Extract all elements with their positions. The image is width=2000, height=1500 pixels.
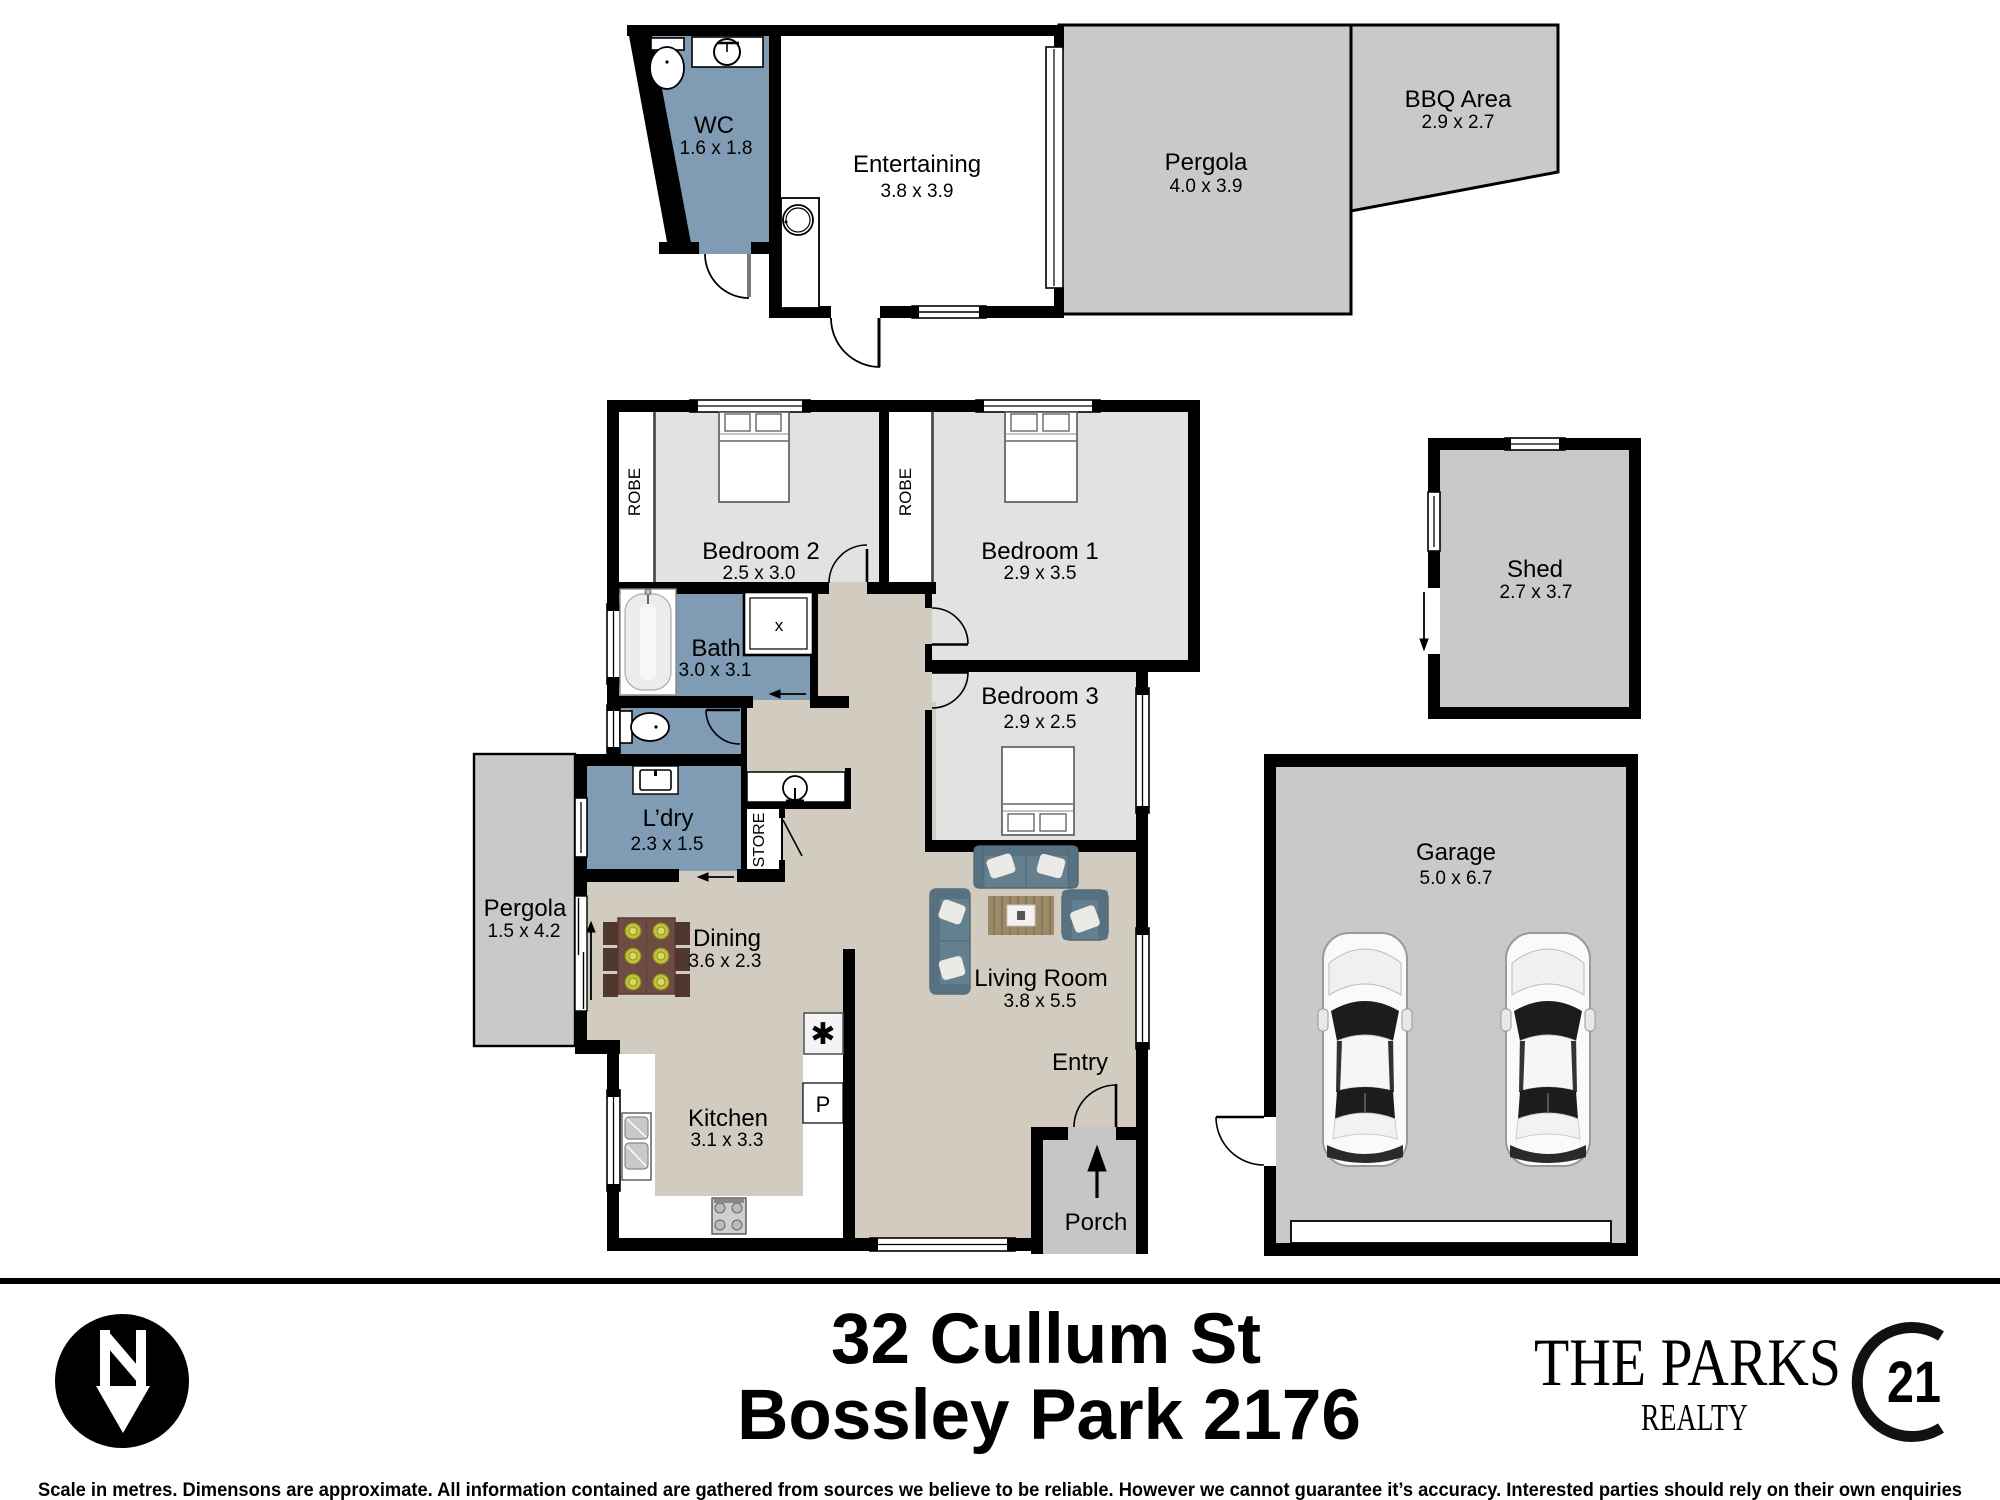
svg-text:Garage: Garage	[1416, 839, 1496, 866]
svg-text:32 Cullum St: 32 Cullum St	[831, 1300, 1261, 1379]
svg-text:ROBE: ROBE	[896, 468, 915, 516]
svg-text:Bedroom 1: Bedroom 1	[981, 538, 1098, 565]
svg-text:L’dry: L’dry	[643, 805, 694, 832]
svg-text:3.8 x 5.5: 3.8 x 5.5	[1004, 991, 1077, 1012]
svg-text:Bedroom 2: Bedroom 2	[702, 538, 819, 565]
svg-text:STORE: STORE	[751, 813, 768, 868]
svg-text:Kitchen: Kitchen	[688, 1105, 768, 1132]
svg-text:Bath: Bath	[691, 635, 740, 662]
svg-text:2.9 x 2.5: 2.9 x 2.5	[1004, 712, 1077, 733]
svg-text:2.5 x 3.0: 2.5 x 3.0	[723, 563, 796, 584]
svg-text:ROBE: ROBE	[625, 468, 644, 516]
svg-text:3.0 x 3.1: 3.0 x 3.1	[679, 660, 752, 681]
svg-text:Shed: Shed	[1507, 556, 1563, 583]
svg-text:Bossley Park 2176: Bossley Park 2176	[737, 1376, 1361, 1455]
svg-text:4.0 x 3.9: 4.0 x 3.9	[1170, 176, 1243, 197]
svg-text:1.6 x 1.8: 1.6 x 1.8	[680, 138, 753, 159]
svg-text:3.1 x 3.3: 3.1 x 3.3	[691, 1130, 764, 1151]
svg-text:3.8 x 3.9: 3.8 x 3.9	[881, 181, 954, 202]
svg-text:Porch: Porch	[1065, 1209, 1128, 1236]
svg-text:Pergola: Pergola	[484, 895, 567, 922]
svg-text:Entry: Entry	[1052, 1049, 1108, 1076]
svg-text:2.3 x 1.5: 2.3 x 1.5	[631, 834, 704, 855]
svg-text:21: 21	[1887, 1350, 1941, 1415]
svg-text:2.9 x 2.7: 2.9 x 2.7	[1422, 112, 1495, 133]
svg-text:P: P	[816, 1092, 831, 1117]
svg-text:x: x	[775, 616, 784, 635]
svg-text:3.6 x 2.3: 3.6 x 2.3	[689, 951, 762, 972]
svg-text:Entertaining: Entertaining	[853, 151, 981, 178]
svg-text:Scale in metres. Dimensons are: Scale in metres. Dimensons are approxima…	[38, 1479, 1962, 1500]
svg-text:5.0 x 6.7: 5.0 x 6.7	[1420, 868, 1493, 889]
svg-text:REALTY: REALTY	[1641, 1397, 1748, 1439]
svg-text:Dining: Dining	[693, 925, 761, 952]
svg-text:BBQ Area: BBQ Area	[1405, 86, 1512, 113]
svg-text:Pergola: Pergola	[1165, 149, 1248, 176]
svg-text:WC: WC	[694, 112, 734, 139]
svg-text:2.7 x 3.7: 2.7 x 3.7	[1500, 582, 1573, 603]
svg-text:THE PARKS: THE PARKS	[1534, 1324, 1841, 1400]
svg-text:✱: ✱	[810, 1018, 835, 1051]
svg-text:1.5 x 4.2: 1.5 x 4.2	[488, 921, 561, 942]
svg-text:Living Room: Living Room	[974, 965, 1107, 992]
svg-text:2.9 x 3.5: 2.9 x 3.5	[1004, 563, 1077, 584]
svg-text:Bedroom 3: Bedroom 3	[981, 683, 1098, 710]
